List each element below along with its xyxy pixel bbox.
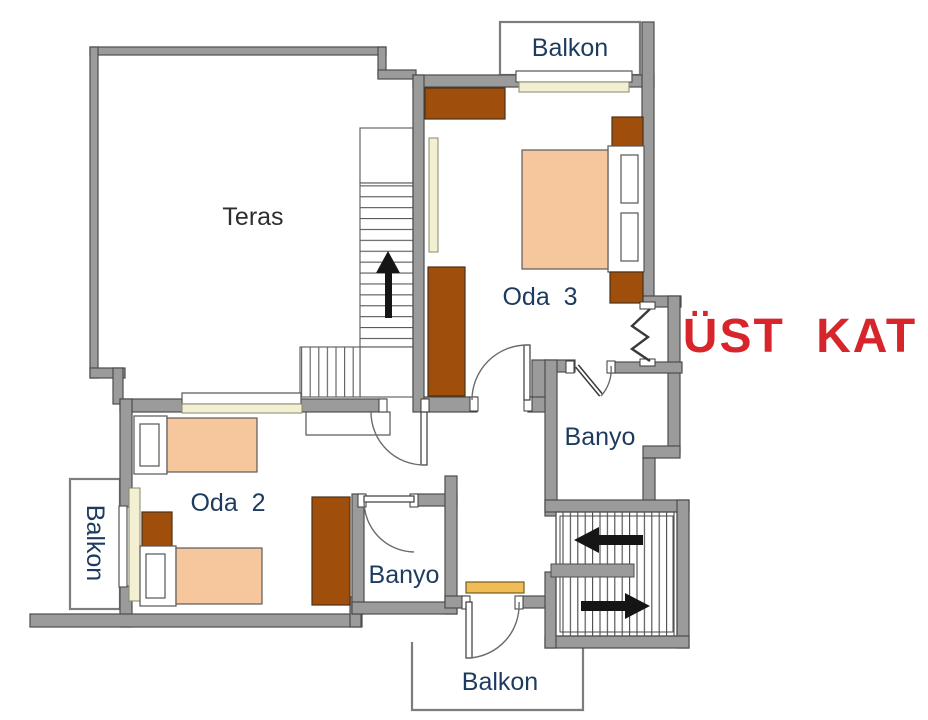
- wall-oda3-west: [413, 75, 424, 412]
- label-oda2: Oda 2: [190, 489, 265, 517]
- door-leaf-balcony: [466, 602, 472, 658]
- label-oda3: Oda 3: [502, 283, 577, 311]
- window-oda3-north-sill: [519, 82, 629, 92]
- wall-banyo-jog-v: [643, 458, 655, 505]
- label-balkon-bottom: Balkon: [462, 668, 538, 696]
- bed-oda3-mattress: [522, 150, 608, 269]
- window-oda3-north: [516, 71, 632, 82]
- jamb-accordion-top: [640, 302, 655, 309]
- stairwell-divider: [551, 564, 634, 577]
- stair-bottom-landing: [360, 347, 413, 397]
- wardrobe-oda2: [312, 497, 350, 605]
- stair-top-landing: [360, 128, 413, 183]
- bed-oda3-pillow-2: [621, 213, 638, 261]
- label-balkon-top: Balkon: [532, 34, 608, 62]
- floor-plan-svg: Teras Oda 3 Oda 2 Banyo Banyo Balkon Bal…: [0, 0, 928, 720]
- wall-banyo-jog-h: [643, 446, 680, 458]
- jamb-oda2-east: [421, 399, 429, 412]
- label-balkon-left: Balkon: [81, 505, 109, 581]
- balcony-door-sill: [466, 582, 524, 593]
- wall-banyo-lower-east: [445, 476, 457, 614]
- wall-stairwell-right: [677, 500, 689, 648]
- wall-hall-east: [545, 360, 557, 516]
- wall-teras-top: [90, 47, 386, 55]
- floor-plan-page: Teras Oda 3 Oda 2 Banyo Banyo Balkon Bal…: [0, 0, 928, 720]
- radiator-oda2: [129, 488, 140, 601]
- window-oda2-balcony: [119, 506, 127, 587]
- nightstand-oda2: [142, 512, 172, 547]
- door-leaf-banyo-lower: [364, 496, 414, 502]
- bed1-mattress: [167, 418, 257, 472]
- window-oda2-north-sill: [182, 404, 302, 413]
- door-leaf-oda3: [524, 345, 530, 400]
- dresser-oda3: [425, 88, 505, 119]
- window-oda2-north: [182, 393, 301, 404]
- wall-teras-step-h: [378, 70, 416, 79]
- wall-banyo-lower-bottom: [352, 602, 457, 614]
- radiator-oda3: [429, 138, 438, 252]
- wall-banyo-upper-east: [668, 296, 680, 454]
- bed1-pillow: [140, 424, 159, 466]
- wall-banyo-lower-west: [352, 494, 364, 614]
- switchback-stairwell: [551, 512, 677, 636]
- desk-oda2: [306, 412, 390, 435]
- left-arrow-shaft: [599, 535, 643, 545]
- wardrobe-oda3: [428, 267, 465, 396]
- jamb-oda3-west: [470, 397, 478, 411]
- wall-stairwell-top: [545, 500, 689, 512]
- wall-oda3-south-west: [424, 397, 477, 412]
- page-title: ÜST KAT: [683, 310, 917, 363]
- up-arrow-shaft: [385, 270, 392, 318]
- nightstand-oda3-bottom: [610, 272, 643, 303]
- door-leaf-oda2: [421, 412, 427, 465]
- bed2-mattress: [176, 548, 262, 604]
- label-banyo-upper: Banyo: [565, 423, 636, 451]
- label-teras: Teras: [222, 203, 283, 231]
- jamb-banyo-upper-west: [566, 361, 574, 373]
- jamb-oda2-west: [379, 399, 387, 412]
- wall-teras-left: [90, 47, 98, 378]
- stair-turn-flight: [300, 347, 360, 397]
- wall-oda2-bottom: [30, 614, 362, 627]
- right-arrow-shaft: [581, 601, 625, 611]
- wall-stairwell-bottom: [545, 636, 689, 648]
- wall-stairwell-left: [545, 572, 556, 648]
- bed2-pillow: [146, 554, 165, 598]
- bed-oda3-pillow-1: [621, 155, 638, 203]
- nightstand-oda3-top: [612, 117, 643, 148]
- label-banyo-lower: Banyo: [369, 561, 440, 589]
